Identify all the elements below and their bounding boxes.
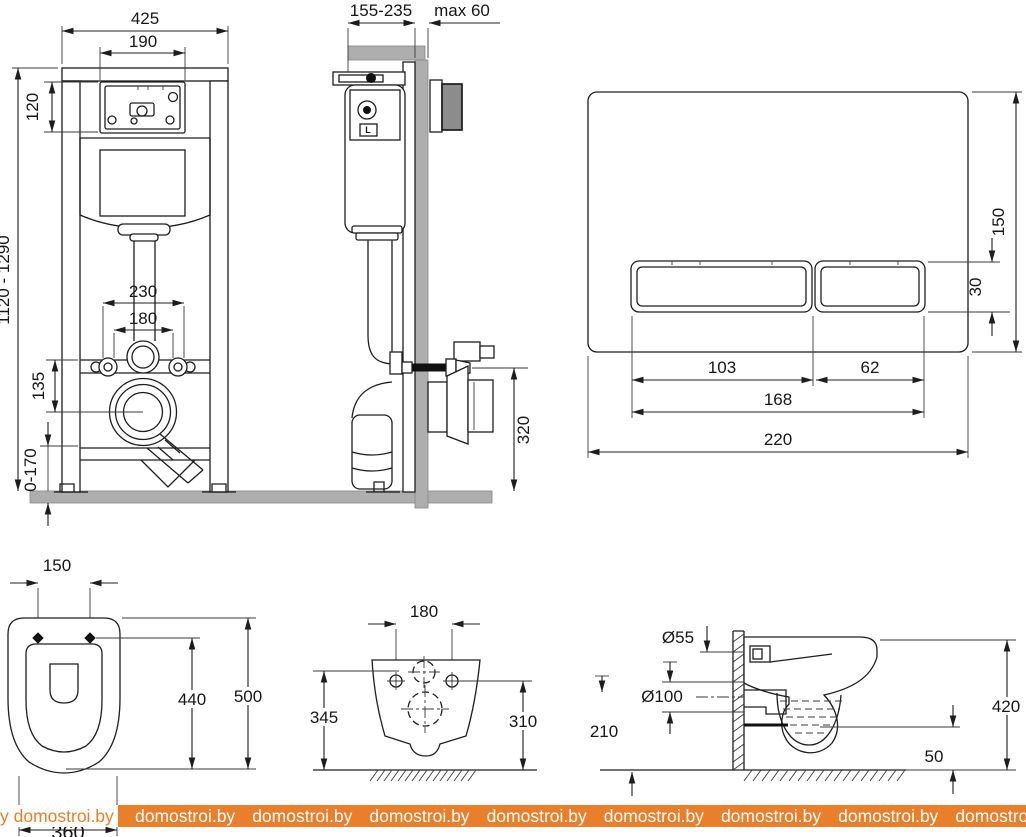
- watermark-tile: domostroi.by: [369, 805, 469, 827]
- watermark-tile: domostroi.by: [487, 805, 587, 827]
- view-flush-plate: 150 30 103 62 168 220: [588, 92, 1022, 458]
- dim-wall-max: max 60: [434, 1, 490, 20]
- watermark-left-tile: y domostroi.by: [0, 805, 118, 827]
- watermark-band: y domostroi.by domostroi.by domostroi.by…: [0, 805, 1026, 827]
- dim-rod-spacing-inner: 180: [129, 309, 157, 328]
- valve-label: L: [365, 125, 371, 135]
- dim-floor-clearance: 50: [925, 747, 944, 766]
- dim-hole-spacing: 150: [43, 556, 71, 575]
- waste-outlet: [110, 379, 204, 488]
- dim-total-height: 420: [992, 697, 1020, 716]
- dim-outlet-axis-height: 210: [590, 722, 618, 741]
- dim-total-depth: 500: [234, 687, 262, 706]
- flush-pipe-side: [368, 240, 392, 364]
- dim-inner-depth: 440: [178, 690, 206, 709]
- dim-button-height: 30: [966, 278, 985, 297]
- dim-small-button-width: 62: [861, 358, 880, 377]
- watermark-tile: domostroi.by: [955, 805, 1026, 827]
- wall-section: [415, 60, 428, 508]
- dimension-210: 210: [590, 676, 632, 796]
- watermark-tile: domostroi.by: [838, 805, 938, 827]
- dim-depth-range: 155-235: [350, 1, 412, 20]
- dimension-50: 50: [820, 705, 960, 794]
- dim-height-range: 1120 - 1290: [0, 235, 13, 324]
- watermark-tile: domostroi.by: [721, 805, 821, 827]
- dim-height-right: 310: [509, 712, 537, 731]
- dim-opening-width: 190: [129, 32, 157, 51]
- dim-leg-range: 0-170: [21, 448, 40, 491]
- drawing-canvas: 425 190 120 1120 - 1290 230 180: [0, 0, 1026, 837]
- view-installation-frame-side: L: [333, 1, 533, 508]
- dim-hole-spacing: 180: [410, 602, 438, 621]
- supply-pipe: [412, 364, 446, 371]
- dim-buttons-width: 168: [764, 390, 792, 409]
- dim-total-width: 425: [131, 9, 159, 28]
- dimension-wall-max: max 60: [428, 1, 500, 58]
- bowl-side-outline: [744, 637, 877, 753]
- dim-big-button-width: 103: [708, 358, 736, 377]
- dimension-outlet-diameter: Ø100: [641, 687, 744, 734]
- flush-plate-body: [588, 92, 968, 352]
- flush-button-small: [815, 261, 925, 312]
- dim-plate-height: 150: [989, 208, 1008, 236]
- cistern-access-box: [100, 82, 185, 133]
- floor-hatch: [744, 770, 906, 781]
- flush-button-large: [631, 261, 812, 312]
- bowl-rear-outline: [372, 660, 480, 756]
- dimension-height-range: 1120 - 1290: [0, 68, 58, 491]
- dimension-168: 168: [632, 386, 924, 418]
- wall-bracket: [333, 72, 405, 85]
- cistern-side: L: [345, 85, 405, 374]
- watermark-tile: domostroi.by: [135, 805, 235, 827]
- dimension-420: 420: [880, 640, 1024, 770]
- view-bowl-top: 150 440 500 360: [8, 556, 267, 837]
- dim-height-left: 345: [310, 708, 338, 727]
- dim-outlet-diameter: Ø100: [641, 687, 683, 706]
- bowl-outline: [8, 618, 120, 773]
- ground-hatch: [313, 770, 537, 781]
- dim-plate-width: 220: [764, 430, 792, 449]
- dim-rod-spacing-outer: 230: [129, 282, 157, 301]
- technical-drawing-page: 425 190 120 1120 - 1290 230 180: [0, 0, 1026, 837]
- waste-wall-connector: [428, 366, 493, 444]
- dim-outlet-drop: 135: [29, 372, 48, 400]
- view-bowl-rear: 180 345: [303, 602, 544, 781]
- top-support-rail: [348, 46, 425, 60]
- flush-plate-housing: [430, 80, 462, 132]
- watermark-tile: domostroi.by: [252, 805, 352, 827]
- dim-outlet-height: 320: [514, 416, 533, 444]
- dimension-plate-height: 150: [972, 92, 1022, 352]
- watermark-tile: domostroi.by: [604, 805, 704, 827]
- dimension-120: 120: [23, 82, 98, 132]
- dim-inlet-diameter: Ø55: [662, 628, 694, 647]
- view-bowl-side: Ø55 Ø100 210 420: [590, 626, 1024, 796]
- view-installation-frame-front: 425 190 120 1120 - 1290 230 180: [0, 9, 236, 526]
- waste-elbow: [352, 382, 400, 492]
- dim-opening-height: 120: [23, 93, 42, 121]
- dimension-inlet-diameter: Ø55: [662, 626, 744, 682]
